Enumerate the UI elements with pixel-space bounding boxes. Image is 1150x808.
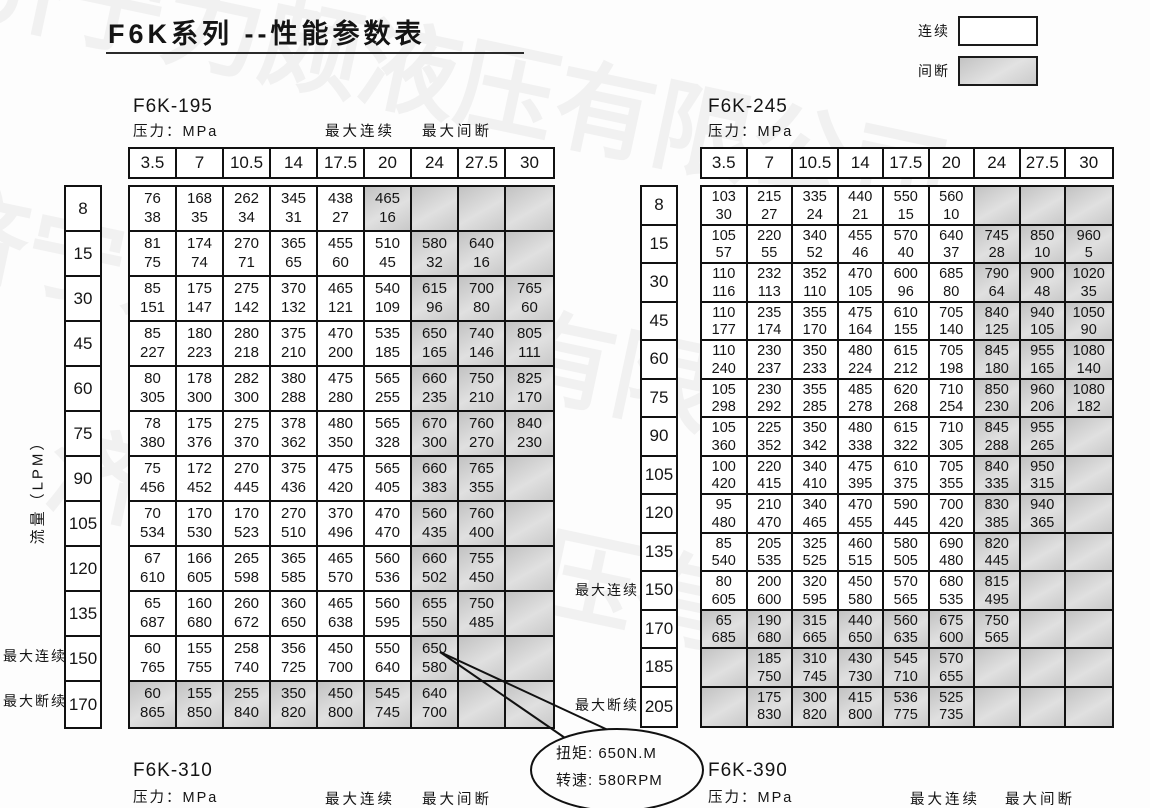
- table-cell: 85151: [130, 277, 177, 322]
- table-cell: 740146: [459, 322, 506, 367]
- table-cell: 64016: [459, 232, 506, 277]
- table-cell: [506, 232, 553, 277]
- table-cell: 710305: [930, 418, 976, 457]
- table-cell: [506, 502, 553, 547]
- table-cell: 535185: [365, 322, 412, 367]
- table-cell: 470455: [839, 495, 885, 534]
- table-cell: 85227: [130, 322, 177, 367]
- flow-row-header: 30: [66, 277, 100, 322]
- flow-row-header: 105: [642, 457, 676, 496]
- table-cell: 205535: [748, 534, 794, 573]
- table-cell: 355285: [793, 380, 839, 419]
- table-cell: 845288: [975, 418, 1021, 457]
- flow-row-header: 45: [66, 322, 100, 367]
- table-cell: 470200: [318, 322, 365, 367]
- table-cell: 475420: [318, 457, 365, 502]
- table-cell: 350820: [271, 682, 318, 727]
- table-cell: 565405: [365, 457, 412, 502]
- legend-intermittent-swatch: [958, 56, 1038, 86]
- table-cell: 175376: [177, 412, 224, 457]
- table-cell: 170530: [177, 502, 224, 547]
- table-cell: 475164: [839, 303, 885, 342]
- table-cell: 280218: [224, 322, 271, 367]
- table-cell: 650165: [412, 322, 459, 367]
- footer2-max-continuous: 最大连续: [910, 788, 980, 808]
- table-cell: 825170: [506, 367, 553, 412]
- table-cell: 565255: [365, 367, 412, 412]
- flow-row-header: 120: [66, 547, 100, 592]
- table-cell: [1021, 187, 1067, 226]
- table1-max-continuous-label: 最大连续: [325, 120, 395, 141]
- table-cell: 375436: [271, 457, 318, 502]
- pressure-col-header: 24: [412, 149, 459, 177]
- table-cell: 180223: [177, 322, 224, 367]
- table-cell: 440650: [839, 611, 885, 650]
- table-cell: [975, 688, 1021, 727]
- table-cell: 378362: [271, 412, 318, 457]
- table-cell: 820445: [975, 534, 1021, 573]
- table-cell: [1066, 534, 1112, 573]
- pressure-col-header: 7: [177, 149, 224, 177]
- flow-row-header: 45: [642, 303, 676, 342]
- flow-row-header: 60: [66, 367, 100, 412]
- table-cell: 340465: [793, 495, 839, 534]
- table-cell: 56010: [930, 187, 976, 226]
- table-cell: 44021: [839, 187, 885, 226]
- table-cell: 275142: [224, 277, 271, 322]
- table-cell: 85540: [702, 534, 748, 573]
- footer1-pressure-label: 压力：MPa: [133, 786, 218, 807]
- table-cell: 95480: [702, 495, 748, 534]
- table-cell: [1066, 649, 1112, 688]
- table-cell: 475395: [839, 457, 885, 496]
- table-cell: 110116: [702, 264, 748, 303]
- table-cell: 580505: [884, 534, 930, 573]
- table2-data-grid: 1033021527335244402155015560101055722055…: [700, 185, 1114, 728]
- table-cell: [1066, 418, 1112, 457]
- table-cell: [1021, 649, 1067, 688]
- table-cell: 325525: [793, 534, 839, 573]
- table-cell: 705140: [930, 303, 976, 342]
- table-cell: 43827: [318, 187, 365, 232]
- table-cell: 660383: [412, 457, 459, 502]
- flow-row-header: 105: [66, 502, 100, 547]
- table-cell: 46516: [365, 187, 412, 232]
- table-cell: 560595: [365, 592, 412, 637]
- table-cell: 465638: [318, 592, 365, 637]
- table-cell: 565328: [365, 412, 412, 457]
- footer2-max-intermittent: 最大间断: [1005, 788, 1075, 808]
- table-cell: 840230: [506, 412, 553, 457]
- table-cell: 105298: [702, 380, 748, 419]
- table-cell: 170523: [224, 502, 271, 547]
- flow-row-header: 8: [66, 187, 100, 232]
- flow-row-header: 75: [642, 380, 676, 419]
- table-cell: [412, 187, 459, 232]
- table-cell: 450800: [318, 682, 365, 727]
- table-cell: 670300: [412, 412, 459, 457]
- table-cell: 275370: [224, 412, 271, 457]
- table-cell: 750210: [459, 367, 506, 412]
- table-cell: 60096: [884, 264, 930, 303]
- pressure-col-header: 3.5: [130, 149, 177, 177]
- table-cell: 840125: [975, 303, 1021, 342]
- table-cell: 178300: [177, 367, 224, 412]
- flow-row-header: 135: [66, 592, 100, 637]
- table-cell: 560536: [365, 547, 412, 592]
- flow-row-header: 15: [642, 226, 676, 265]
- table-cell: 310745: [793, 649, 839, 688]
- table-cell: 57040: [884, 226, 930, 265]
- table-cell: 760400: [459, 502, 506, 547]
- table-cell: 166605: [177, 547, 224, 592]
- table1-pressure-header-row: 3.5710.51417.5202427.530: [128, 147, 555, 179]
- table-cell: 45560: [318, 232, 365, 277]
- table-cell: 415800: [839, 688, 885, 727]
- table-cell: 370496: [318, 502, 365, 547]
- pressure-col-header: 17.5: [884, 149, 930, 177]
- pressure-col-header: 20: [365, 149, 412, 177]
- flow-row-header: 8: [642, 187, 676, 226]
- table-cell: 675600: [930, 611, 976, 650]
- flow-row-header: 170: [66, 682, 100, 727]
- legend-intermittent-label: 间断: [918, 61, 950, 81]
- table-cell: 480338: [839, 418, 885, 457]
- table-cell: [975, 187, 1021, 226]
- pressure-col-header: 14: [839, 149, 885, 177]
- table-cell: 536775: [884, 688, 930, 727]
- table-cell: 67610: [130, 547, 177, 592]
- table-cell: 64037: [930, 226, 976, 265]
- table-cell: 545745: [365, 682, 412, 727]
- table-cell: 232113: [748, 264, 794, 303]
- table-cell: 300820: [793, 688, 839, 727]
- legend-intermittent: 间断: [918, 56, 1038, 86]
- pressure-col-header: 3.5: [702, 149, 748, 177]
- table-cell: 610375: [884, 457, 930, 496]
- table-cell: 258740: [224, 637, 271, 682]
- table-cell: 845180: [975, 341, 1021, 380]
- flow-row-header: 15: [66, 232, 100, 277]
- table-cell: 36565: [271, 232, 318, 277]
- table-cell: 17474: [177, 232, 224, 277]
- table-cell: 26234: [224, 187, 271, 232]
- table-cell: 465121: [318, 277, 365, 322]
- flow-row-header: 135: [642, 534, 676, 573]
- table-cell: 102035: [1066, 264, 1112, 303]
- table-cell: 200600: [748, 572, 794, 611]
- table-cell: 70534: [130, 502, 177, 547]
- table-cell: 700420: [930, 495, 976, 534]
- table-cell: 270445: [224, 457, 271, 502]
- table-cell: 960206: [1021, 380, 1067, 419]
- table-cell: 80305: [130, 367, 177, 412]
- table-cell: 545710: [884, 649, 930, 688]
- table-cell: 460515: [839, 534, 885, 573]
- table-cell: [1066, 457, 1112, 496]
- table-cell: 1080140: [1066, 341, 1112, 380]
- table-cell: 470105: [839, 264, 885, 303]
- table-cell: [506, 547, 553, 592]
- table-cell: 80605: [702, 572, 748, 611]
- table-cell: 33524: [793, 187, 839, 226]
- table-cell: 8175: [130, 232, 177, 277]
- page-title: F6K系列 --性能参数表: [108, 12, 426, 51]
- table-cell: 365585: [271, 547, 318, 592]
- flow-row-header: 75: [66, 412, 100, 457]
- table-cell: 70080: [459, 277, 506, 322]
- table-cell: 10557: [702, 226, 748, 265]
- table-cell: 450580: [839, 572, 885, 611]
- pressure-col-header: 14: [271, 149, 318, 177]
- table-cell: 480224: [839, 341, 885, 380]
- table1-side-max-interrupt: 最大断续: [3, 691, 67, 711]
- table-cell: 470470: [365, 502, 412, 547]
- table-cell: 76560: [506, 277, 553, 322]
- table-cell: 160680: [177, 592, 224, 637]
- table-cell: 480350: [318, 412, 365, 457]
- footer1-max-continuous: 最大连续: [325, 788, 395, 808]
- table-cell: 34531: [271, 187, 318, 232]
- table-cell: 340410: [793, 457, 839, 496]
- table-cell: 705355: [930, 457, 976, 496]
- table-cell: 375210: [271, 322, 318, 367]
- table-cell: [1066, 187, 1112, 226]
- table-cell: 560435: [412, 502, 459, 547]
- flow-row-header: 150: [66, 637, 100, 682]
- table-cell: 265598: [224, 547, 271, 592]
- table-cell: 190680: [748, 611, 794, 650]
- table-cell: 260672: [224, 592, 271, 637]
- table-cell: 615212: [884, 341, 930, 380]
- table-cell: 282300: [224, 367, 271, 412]
- table-cell: 75456: [130, 457, 177, 502]
- flow-row-header: 90: [642, 418, 676, 457]
- table-cell: [1066, 611, 1112, 650]
- table-cell: 225352: [748, 418, 794, 457]
- pressure-col-header: 10.5: [793, 149, 839, 177]
- pressure-col-header: 20: [930, 149, 976, 177]
- pressure-col-header: 27.5: [1021, 149, 1067, 177]
- table-cell: 955265: [1021, 418, 1067, 457]
- table-cell: 100420: [702, 457, 748, 496]
- table-cell: 172452: [177, 457, 224, 502]
- table-cell: 525735: [930, 688, 976, 727]
- table-cell: 105360: [702, 418, 748, 457]
- table1-side-max-continuous: 最大连续: [3, 646, 67, 666]
- table-cell: 45546: [839, 226, 885, 265]
- table-cell: [975, 649, 1021, 688]
- table-cell: [506, 457, 553, 502]
- table-cell: 360650: [271, 592, 318, 637]
- table-cell: 9605: [1066, 226, 1112, 265]
- table-cell: 850230: [975, 380, 1021, 419]
- table2-side-max-continuous: 最大连续: [575, 580, 639, 600]
- table-cell: 34052: [793, 226, 839, 265]
- table-cell: 230292: [748, 380, 794, 419]
- table-cell: 550640: [365, 637, 412, 682]
- table-cell: 235174: [748, 303, 794, 342]
- legend-continuous: 连续: [918, 16, 1038, 46]
- flow-row-header: 60: [642, 341, 676, 380]
- table-cell: [506, 187, 553, 232]
- table-cell: 51045: [365, 232, 412, 277]
- table-cell: [459, 187, 506, 232]
- table-cell: 270510: [271, 502, 318, 547]
- pressure-col-header: 24: [975, 149, 1021, 177]
- table1-max-intermittent-label: 最大间断: [422, 120, 492, 141]
- table-cell: [1021, 534, 1067, 573]
- pressure-col-header: 10.5: [224, 149, 271, 177]
- table-cell: 680535: [930, 572, 976, 611]
- table-cell: 1080182: [1066, 380, 1112, 419]
- table-cell: 320595: [793, 572, 839, 611]
- table-cell: 21527: [748, 187, 794, 226]
- table2-pressure-label: 压力：MPa: [708, 120, 793, 141]
- table-cell: 750565: [975, 611, 1021, 650]
- table-cell: 90048: [1021, 264, 1067, 303]
- flow-row-header: 150: [642, 572, 676, 611]
- table-cell: 22055: [748, 226, 794, 265]
- table-cell: 465570: [318, 547, 365, 592]
- table1-name: F6K-195: [133, 96, 213, 118]
- legend-continuous-swatch: [958, 16, 1038, 46]
- table-cell: 840335: [975, 457, 1021, 496]
- table-cell: 155850: [177, 682, 224, 727]
- table-cell: 110177: [702, 303, 748, 342]
- table-cell: 760270: [459, 412, 506, 457]
- table-cell: 940105: [1021, 303, 1067, 342]
- table-cell: 185750: [748, 649, 794, 688]
- table-cell: 610155: [884, 303, 930, 342]
- table-cell: 380288: [271, 367, 318, 412]
- table-cell: 255840: [224, 682, 271, 727]
- table-cell: 68580: [930, 264, 976, 303]
- pressure-col-header: 30: [506, 149, 553, 177]
- table-cell: 10330: [702, 187, 748, 226]
- table-cell: 590445: [884, 495, 930, 534]
- table-cell: 805111: [506, 322, 553, 367]
- table1-flow-column: 8153045607590105120135150170: [64, 185, 102, 729]
- table-cell: 765355: [459, 457, 506, 502]
- table-cell: 370132: [271, 277, 318, 322]
- title-underline: [106, 52, 524, 54]
- table-cell: 315665: [793, 611, 839, 650]
- table-cell: 74528: [975, 226, 1021, 265]
- table-cell: 950315: [1021, 457, 1067, 496]
- table-cell: 430730: [839, 649, 885, 688]
- table-cell: 60765: [130, 637, 177, 682]
- table-cell: 450700: [318, 637, 365, 682]
- table-cell: 78380: [130, 412, 177, 457]
- table-cell: 85010: [1021, 226, 1067, 265]
- table-cell: 540109: [365, 277, 412, 322]
- callout-speed: 转速: 580RPM: [556, 767, 663, 794]
- table-cell: 7638: [130, 187, 177, 232]
- table-cell: [1066, 572, 1112, 611]
- table-cell: 570655: [930, 649, 976, 688]
- table2-name: F6K-245: [708, 96, 788, 118]
- table-cell: 175830: [748, 688, 794, 727]
- pressure-col-header: 7: [748, 149, 794, 177]
- legend-continuous-label: 连续: [918, 21, 950, 41]
- table-cell: 27071: [224, 232, 271, 277]
- callout-note: 扭矩: 650N.M 转速: 580RPM: [556, 740, 663, 794]
- table-cell: 815495: [975, 572, 1021, 611]
- table-cell: [1021, 572, 1067, 611]
- table-cell: 615322: [884, 418, 930, 457]
- table-cell: 940365: [1021, 495, 1067, 534]
- table-cell: 560635: [884, 611, 930, 650]
- table-cell: 155755: [177, 637, 224, 682]
- table-cell: [1066, 688, 1112, 727]
- flow-row-header: 90: [66, 457, 100, 502]
- table-cell: 110240: [702, 341, 748, 380]
- table-cell: 755450: [459, 547, 506, 592]
- table-cell: 620268: [884, 380, 930, 419]
- table-cell: [1066, 495, 1112, 534]
- table-cell: 352110: [793, 264, 839, 303]
- table-cell: 210470: [748, 495, 794, 534]
- table-cell: 660235: [412, 367, 459, 412]
- table1-pressure-label: 压力：MPa: [133, 120, 218, 141]
- table-cell: 660502: [412, 547, 459, 592]
- table-cell: 220415: [748, 457, 794, 496]
- table-cell: 355170: [793, 303, 839, 342]
- table-cell: 710254: [930, 380, 976, 419]
- table2-pressure-header-row: 3.5710.51417.5202427.530: [700, 147, 1114, 179]
- table-cell: 105090: [1066, 303, 1112, 342]
- table-cell: 16835: [177, 187, 224, 232]
- pressure-col-header: 30: [1066, 149, 1112, 177]
- table-cell: [1021, 611, 1067, 650]
- callout-torque: 扭矩: 650N.M: [556, 740, 663, 767]
- table-cell: 55015: [884, 187, 930, 226]
- table-cell: 350342: [793, 418, 839, 457]
- footer1-name: F6K-310: [133, 760, 213, 782]
- table-cell: 58032: [412, 232, 459, 277]
- table-cell: 690480: [930, 534, 976, 573]
- table-cell: 65687: [130, 592, 177, 637]
- catalog-page: 济宁力颇液压有限公司 济宁力颇液压有限公司 济宁力颇液压有限公司 F6K系列 -…: [0, 0, 1150, 808]
- table-cell: 705198: [930, 341, 976, 380]
- table-cell: 61596: [412, 277, 459, 322]
- footer2-pressure-label: 压力：MPa: [708, 786, 793, 807]
- table-cell: 79064: [975, 264, 1021, 303]
- table-cell: 485278: [839, 380, 885, 419]
- table-cell: 570565: [884, 572, 930, 611]
- table-cell: 955165: [1021, 341, 1067, 380]
- table-cell: 475280: [318, 367, 365, 412]
- flow-row-header: 30: [642, 264, 676, 303]
- table-cell: [1021, 688, 1067, 727]
- pressure-col-header: 17.5: [318, 149, 365, 177]
- table-cell: 830385: [975, 495, 1021, 534]
- flow-row-header: 120: [642, 495, 676, 534]
- flow-axis-label: 流量（LPM）: [27, 414, 48, 564]
- table-cell: 230237: [748, 341, 794, 380]
- table-cell: 350233: [793, 341, 839, 380]
- table-cell: 60865: [130, 682, 177, 727]
- table-cell: 356725: [271, 637, 318, 682]
- table-cell: 175147: [177, 277, 224, 322]
- pressure-col-header: 27.5: [459, 149, 506, 177]
